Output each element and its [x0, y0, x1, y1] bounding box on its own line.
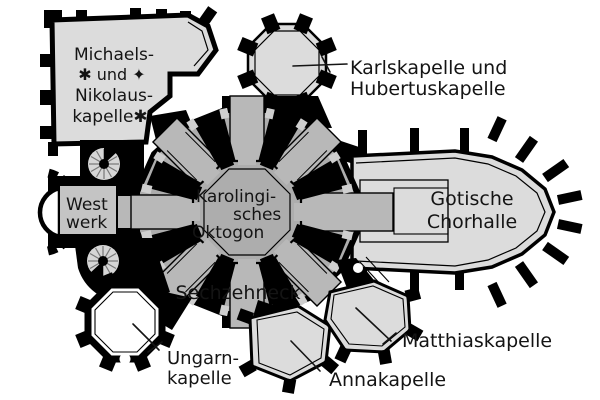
spiral-stair-south: [83, 241, 123, 281]
label-westwerk-line2: werk: [66, 213, 107, 233]
label-michaels-line4: kapelle✱: [72, 107, 147, 127]
label-matthiaskapelle: Matthiaskapelle: [402, 330, 552, 352]
floor-plan-svg: Michaels- ✱ und ✦ Nikolaus- kapelle✱ Kar…: [0, 0, 600, 400]
cathedral-floor-plan: Michaels- ✱ und ✦ Nikolaus- kapelle✱ Kar…: [0, 0, 600, 400]
label-michaels-line1: Michaels-: [74, 45, 154, 65]
label-westwerk-line1: West: [66, 195, 108, 215]
label-karlskapelle-line2: Hubertuskapelle: [350, 78, 506, 100]
label-oktogon-line1: Karolingi-: [196, 187, 276, 207]
label-ungarn-line1: Ungarn-: [167, 348, 239, 369]
label-ungarn-line2: kapelle: [167, 368, 232, 389]
apse-niche: [120, 354, 131, 365]
label-chorhalle-line2: Chorhalle: [427, 211, 517, 233]
label-annakapelle: Annakapelle: [329, 369, 446, 391]
label-sechzehneck: Sechzehneck: [175, 282, 300, 304]
label-chorhalle-line1: Gotische: [430, 188, 513, 210]
column-dot: [353, 263, 363, 273]
chapel-outline: [325, 281, 410, 352]
label-oktogon-line3: Oktogon: [192, 223, 264, 243]
chapel-outline: [248, 24, 326, 102]
label-michaels-line2: ✱ und ✦: [78, 65, 145, 84]
label-oktogon-line2: sches: [233, 205, 281, 225]
spiral-stair-north: [84, 144, 124, 184]
chapel-outline: [88, 285, 162, 359]
label-karlskapelle-line1: Karlskapelle und: [350, 57, 507, 79]
label-michaels-line3: Nikolaus-: [75, 86, 153, 106]
